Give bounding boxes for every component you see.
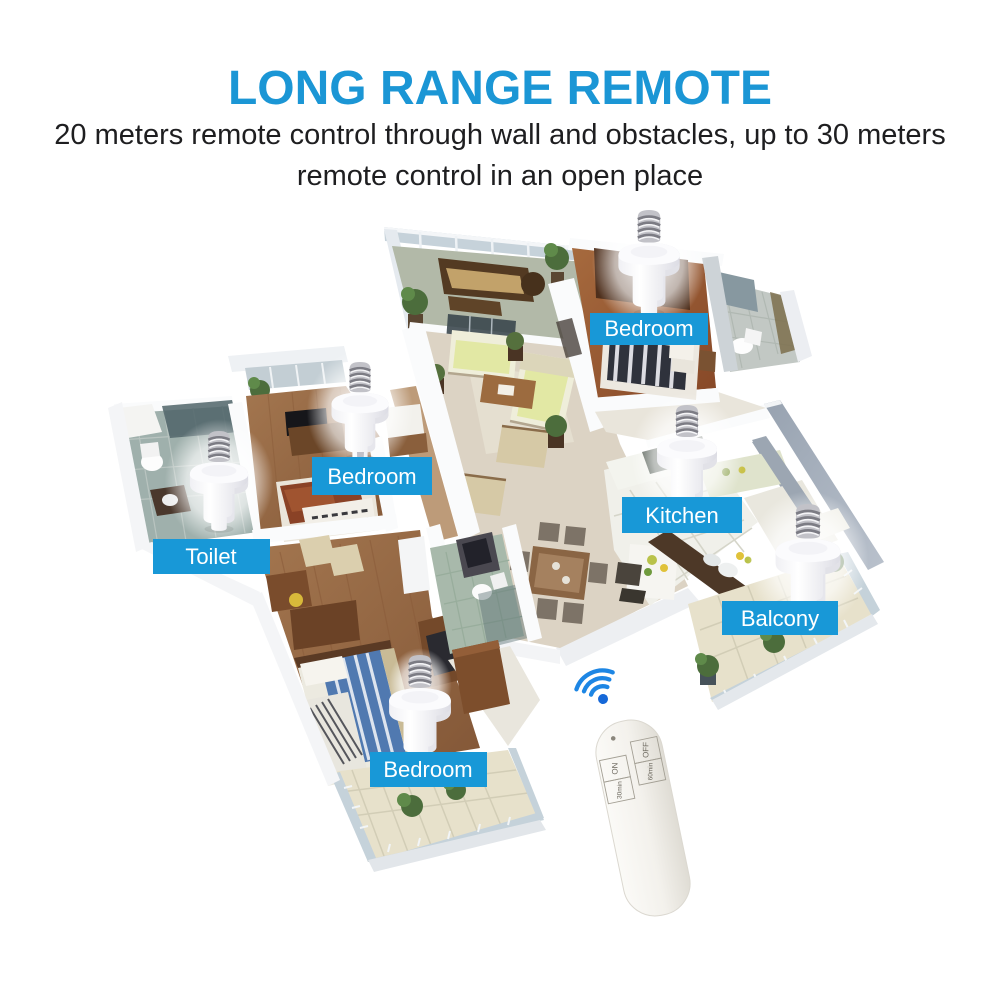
svg-text:60min: 60min	[647, 762, 654, 780]
svg-text:Bedroom: Bedroom	[327, 464, 416, 489]
svg-text:ON: ON	[610, 762, 619, 774]
svg-text:30min: 30min	[617, 781, 624, 799]
svg-text:OFF: OFF	[641, 742, 650, 758]
svg-text:Kitchen: Kitchen	[645, 503, 718, 528]
svg-text:Toilet: Toilet	[185, 544, 236, 569]
svg-text:Bedroom: Bedroom	[383, 757, 472, 782]
svg-text:Balcony: Balcony	[741, 606, 819, 631]
svg-text:Bedroom: Bedroom	[604, 316, 693, 341]
